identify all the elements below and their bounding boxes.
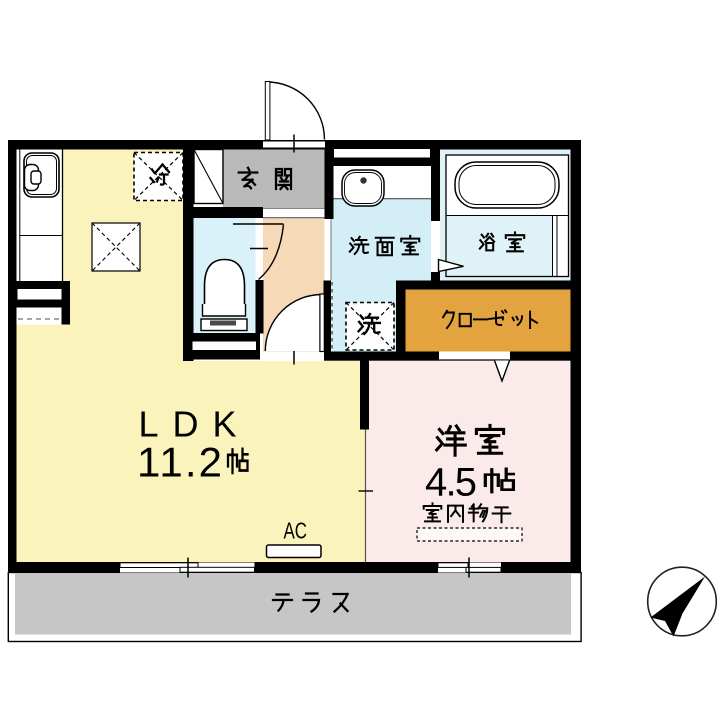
svg-text:AC: AC <box>284 518 308 544</box>
svg-text:11.2: 11.2 <box>137 439 222 486</box>
svg-text:4.5: 4.5 <box>425 461 477 505</box>
